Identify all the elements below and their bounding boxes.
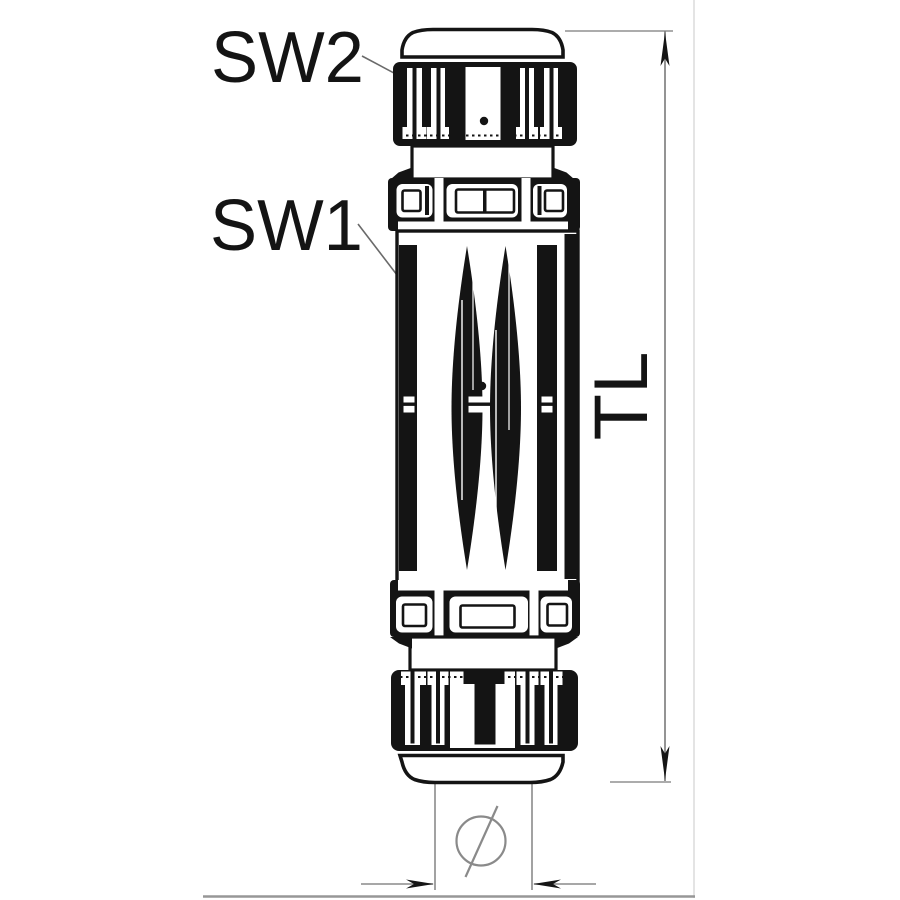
lower-neck bbox=[390, 637, 578, 670]
top-cap-knurl bbox=[393, 62, 577, 146]
label-sw1: SW1 bbox=[210, 190, 363, 262]
diameter-symbol bbox=[457, 806, 506, 877]
upper-neck bbox=[412, 146, 553, 179]
diameter-dimension bbox=[361, 784, 596, 890]
lower-hex-nut bbox=[390, 580, 580, 637]
gland-body bbox=[397, 231, 578, 582]
sw2-leader-dot bbox=[480, 117, 488, 125]
bottom-cap-knurl bbox=[391, 670, 578, 751]
label-tl: TL bbox=[584, 352, 660, 441]
cable-gland-drawing bbox=[0, 0, 900, 900]
bottom-cap bbox=[400, 756, 563, 783]
label-sw2: SW2 bbox=[211, 22, 364, 94]
top-cap bbox=[402, 30, 563, 58]
diagram-canvas: SW2 SW1 TL bbox=[0, 0, 900, 900]
sw1-leader-dot bbox=[478, 382, 486, 390]
